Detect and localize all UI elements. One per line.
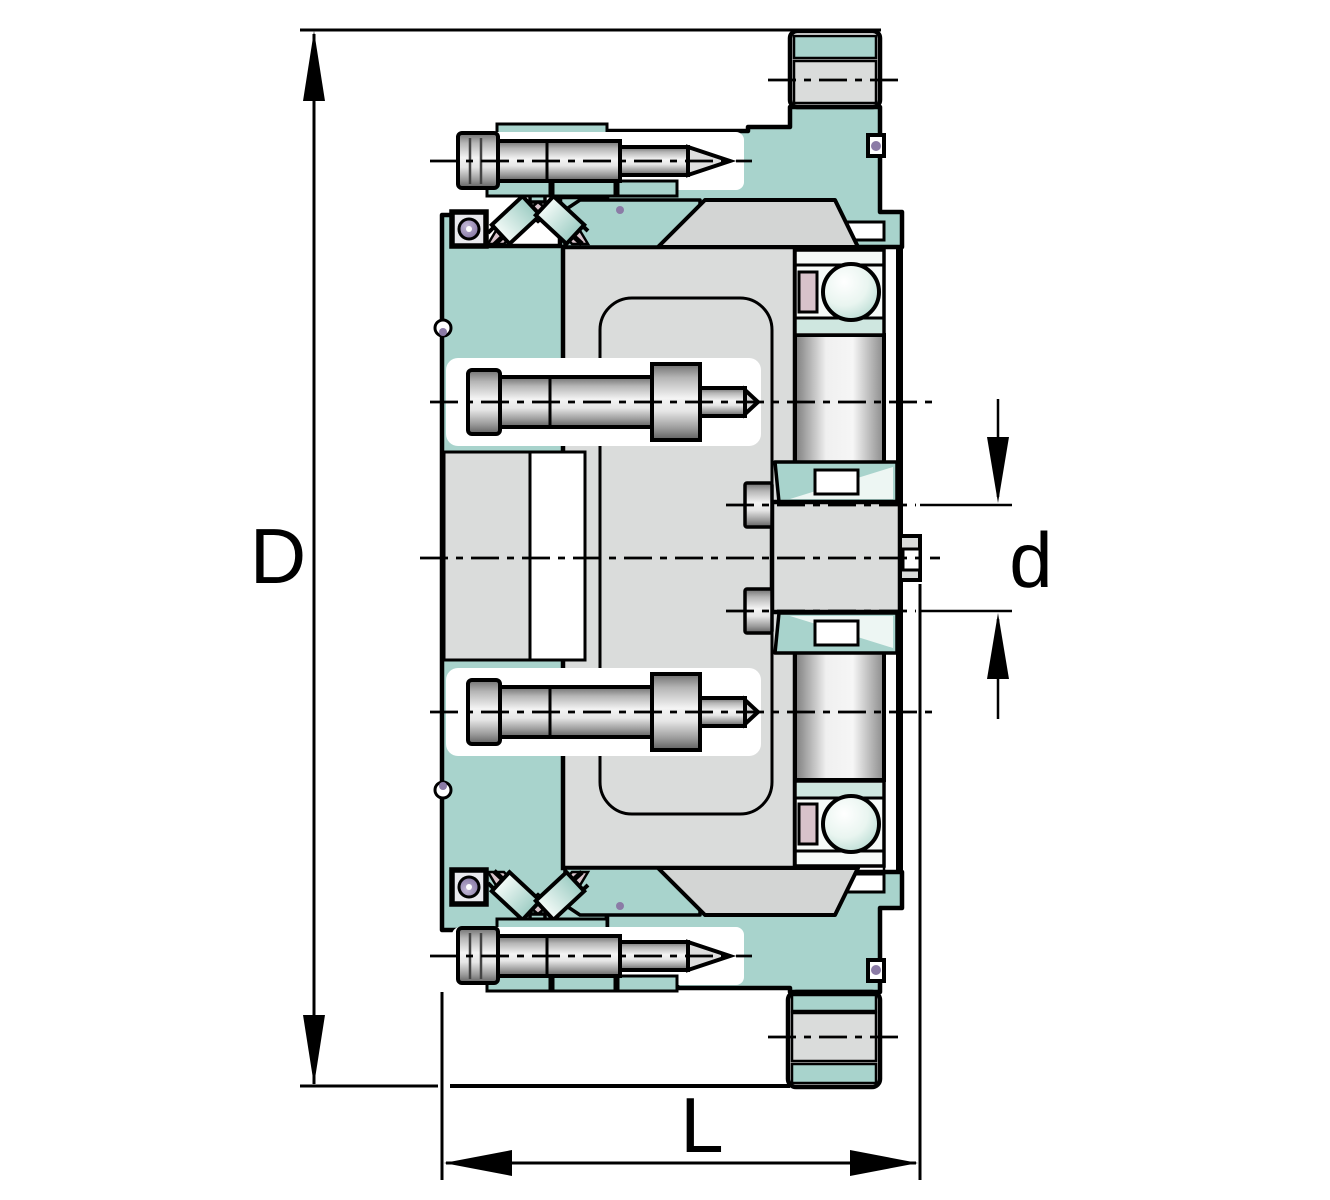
cross-section-diagram: D L d: [0, 0, 1330, 1200]
flange-barrel-top: [790, 31, 880, 107]
shaft-keyway: [903, 549, 920, 570]
bearing-cage-bottom: [799, 804, 817, 844]
bearing-cage-top: [799, 272, 817, 312]
ball-bearing-bottom: [795, 781, 884, 866]
carrier-web: [444, 452, 530, 660]
dimension-d-label: d: [1009, 516, 1052, 604]
dimension-L-label: L: [680, 1081, 723, 1169]
flange-barrel-bottom: [788, 992, 880, 1087]
ball-bearing-top: [795, 250, 884, 335]
carrier-channel: [530, 452, 585, 660]
dimension-D-label: D: [250, 512, 306, 600]
bearing-ball-top: [823, 264, 879, 320]
technical-drawing-page: D L d: [0, 0, 1330, 1200]
bearing-ball-bottom: [823, 796, 879, 852]
